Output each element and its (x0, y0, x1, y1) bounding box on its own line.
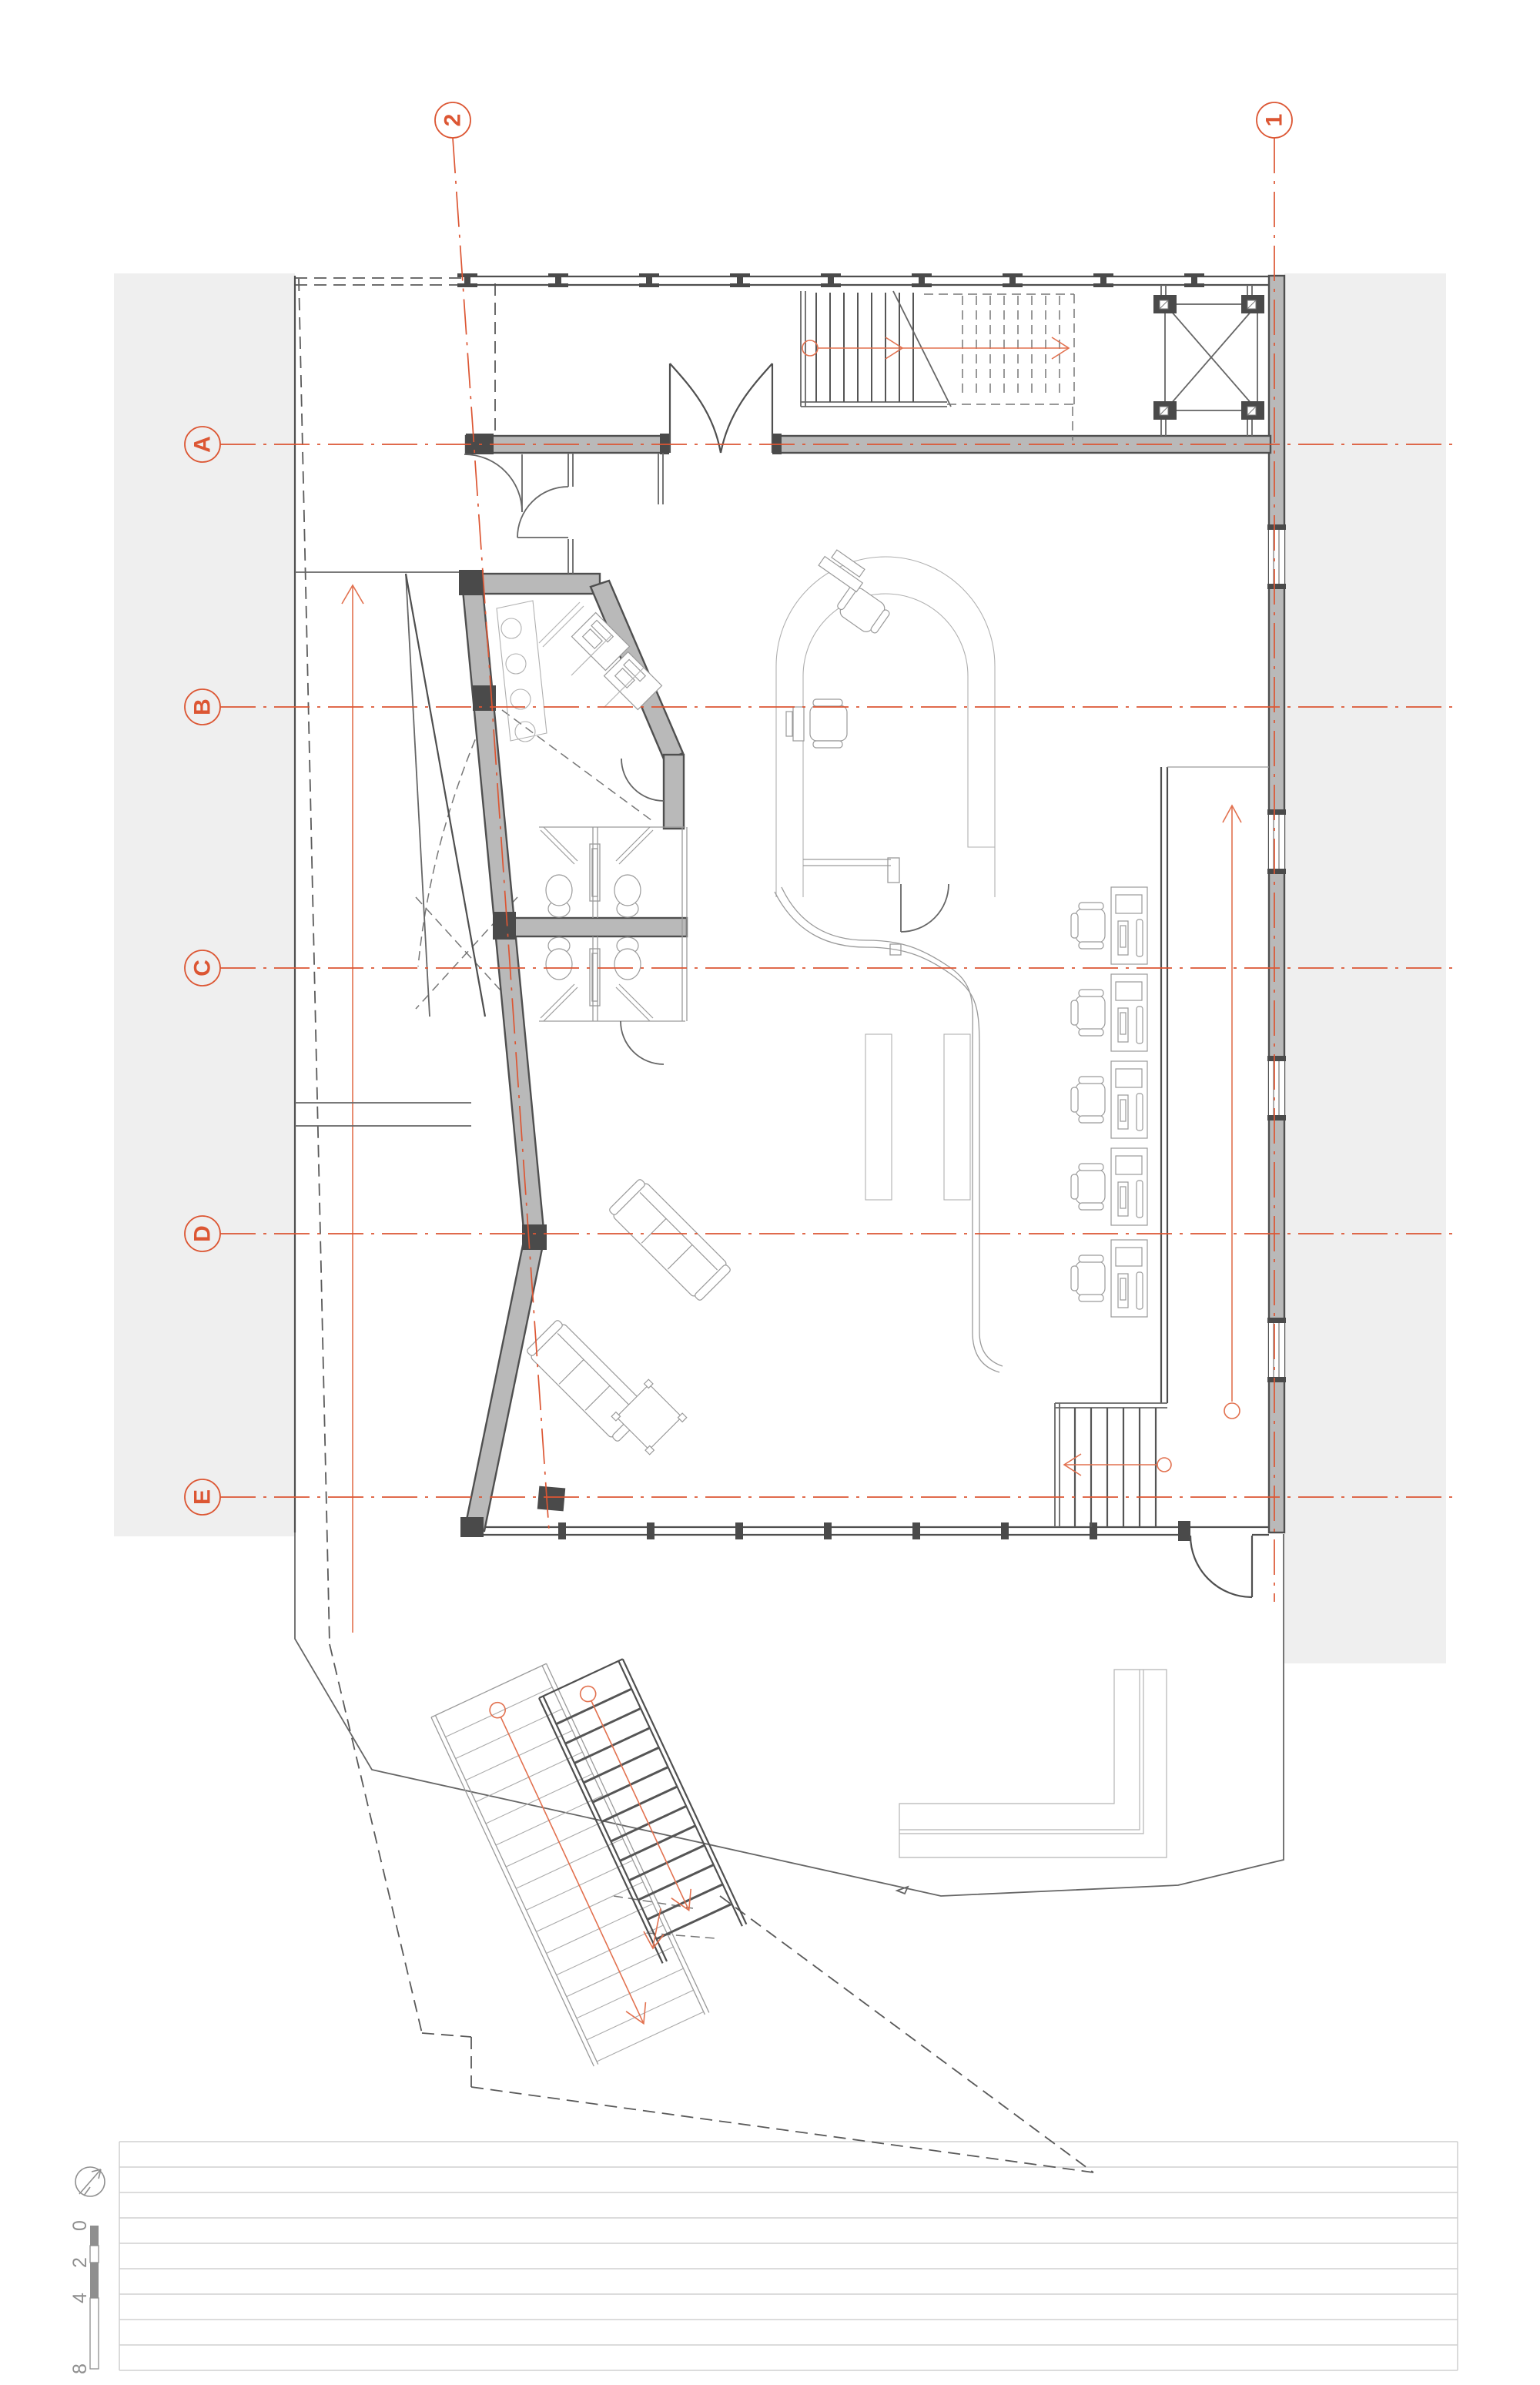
grid-bubble-1-label: 1 (1262, 114, 1287, 127)
drawing-page: 2 1 A B C D E (0, 0, 1540, 2385)
office-partitions (464, 453, 663, 574)
grid-bubble-E-label: E (190, 1489, 216, 1505)
north-arrow-icon (75, 2167, 105, 2196)
stair-direction-arrow (802, 337, 1069, 359)
scale-mark-0: 0 (69, 2220, 91, 2231)
right-wall (1267, 276, 1286, 1532)
grid-bubble-2-label: 2 (440, 114, 466, 127)
right-corridor (1161, 767, 1269, 1419)
ground-ruled-lines (119, 2142, 1458, 2370)
terrace-stair-dark (539, 1659, 746, 1963)
elevator-shaft (1153, 285, 1264, 436)
bottom-right-stair (1055, 1403, 1171, 1527)
scale-mark-4: 4 (69, 2293, 91, 2303)
reception-desk (776, 546, 995, 897)
scale-mark-8: 8 (69, 2363, 91, 2374)
floor-plan-canvas: 2 1 A B C D E (0, 0, 1540, 2385)
curved-partition (775, 858, 1003, 1372)
scale-mark-2: 2 (69, 2257, 91, 2268)
terrace-planter (899, 1670, 1167, 1857)
bottom-wall-columns (558, 1521, 1190, 1541)
terrace-door (1190, 1536, 1252, 1597)
top-staircase (801, 291, 1074, 440)
terrace-outline (295, 1532, 1284, 1896)
grid-bubble-A-label: A (190, 436, 216, 453)
grid-bubble-C-label: C (190, 960, 216, 976)
right-workstations (1071, 887, 1147, 1317)
entrance-double-door (670, 363, 772, 453)
scale-bar: 0 2 4 8 (69, 2220, 99, 2374)
lounge-sofas (525, 1177, 733, 1455)
diagonal-workstations (539, 602, 661, 709)
central-counters (865, 1034, 970, 1200)
roof-projection-dashed (295, 278, 1093, 2172)
grid-bubble-2: 2 (435, 102, 470, 138)
grid-bubble-B-label: B (190, 698, 216, 715)
bar-counter (497, 601, 547, 742)
grid-bubble-1: 1 (1257, 102, 1292, 138)
grid-bubble-D-label: D (190, 1225, 216, 1242)
ramp-zone (295, 574, 485, 1633)
